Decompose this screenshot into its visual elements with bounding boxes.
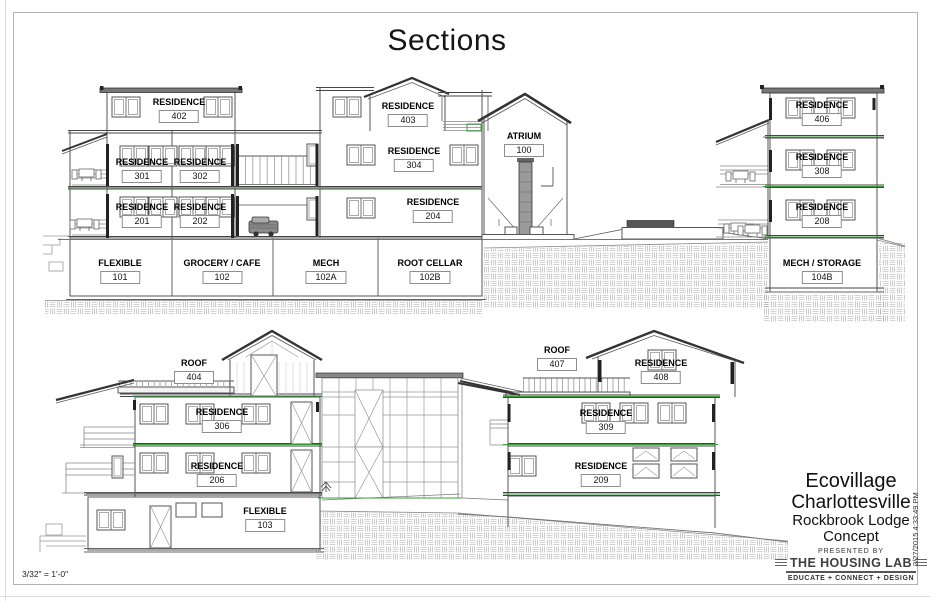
room-label-304: RESIDENCE304 (388, 146, 441, 172)
logo-text: THE HOUSING LAB (790, 556, 912, 571)
room-label-408: RESIDENCE408 (635, 358, 688, 384)
plot-timestamp: 2/27/2015 4:33:49 PM (911, 452, 920, 566)
room-label-201: RESIDENCE201 (116, 202, 169, 228)
logo-left-bars-icon (775, 559, 787, 567)
room-label-309: RESIDENCE309 (580, 408, 633, 434)
room-label-301: RESIDENCE301 (116, 157, 169, 183)
room-label-403: RESIDENCE403 (382, 101, 435, 127)
presented-by-label: PRESENTED BY (786, 548, 916, 555)
room-label-100: ATRIUM100 (504, 131, 544, 157)
room-label-404: ROOF404 (174, 358, 214, 384)
room-label-103: FLEXIBLE103 (243, 506, 287, 532)
room-label-302: RESIDENCE302 (174, 157, 227, 183)
room-label-306: RESIDENCE306 (196, 407, 249, 433)
room-label-208: RESIDENCE208 (796, 202, 849, 228)
title-block: Ecovillage Charlottesville Rockbrook Lod… (786, 470, 916, 582)
room-label-102: GROCERY / CAFE102 (183, 258, 260, 284)
glass-atrium-drawing (321, 374, 508, 500)
sheet-title: Sections (387, 24, 506, 58)
logo-tagline: EDUCATE + CONNECT + DESIGN (786, 575, 916, 582)
room-label-104b: MECH / STORAGE104B (783, 258, 861, 284)
room-label-402: RESIDENCE402 (153, 97, 206, 123)
housing-lab-logo: THE HOUSING LAB (786, 556, 916, 573)
room-label-407: ROOF407 (537, 345, 577, 371)
room-label-204: RESIDENCE204 (407, 197, 460, 223)
room-label-101: FLEXIBLE101 (98, 258, 142, 284)
room-label-308: RESIDENCE308 (796, 152, 849, 178)
project-name-line1: Ecovillage (786, 470, 916, 492)
room-label-406: RESIDENCE406 (796, 100, 849, 126)
project-subtitle-line2: Concept (786, 529, 916, 545)
room-label-102b: ROOT CELLAR102B (398, 258, 463, 284)
scale-note: 3/32" = 1'-0" (22, 569, 68, 579)
room-label-102a: MECH102A (305, 258, 346, 284)
project-subtitle-line1: Rockbrook Lodge (786, 513, 916, 529)
lower-right-building (458, 331, 788, 542)
project-name-line2: Charlottesville (786, 492, 916, 513)
drawing-sheet: Sections (0, 0, 930, 601)
atrium-drawing (478, 94, 574, 240)
room-label-202: RESIDENCE202 (174, 202, 227, 228)
room-label-206: RESIDENCE206 (191, 461, 244, 487)
room-label-209: RESIDENCE209 (575, 461, 628, 487)
car-drawing (249, 217, 278, 237)
